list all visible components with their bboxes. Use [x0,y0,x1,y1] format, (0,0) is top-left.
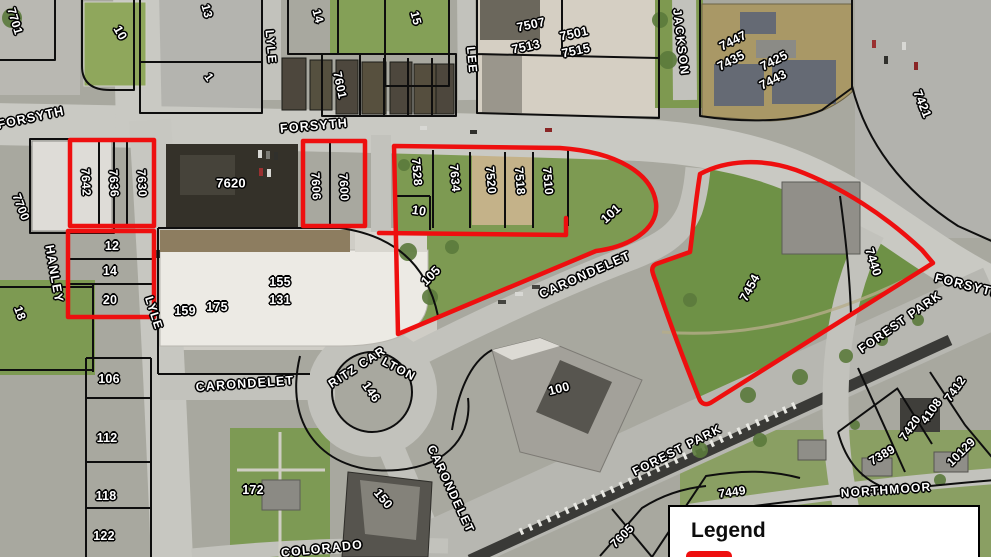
label-parcel-12: 12 [105,240,119,253]
label-parcel-7636: 7636 [107,169,120,197]
label-street-lee: LEE [465,46,479,74]
label-parcel-7501: 7501 [559,25,590,43]
label-parcel-7425: 7425 [758,49,789,73]
label-parcel-7440: 7440 [863,246,884,277]
label-street-lyle-south: LYLE [143,295,165,331]
label-parcel-7389: 7389 [867,443,897,467]
label-parcel-7421: 7421 [911,88,933,119]
legend-panel: Legend [668,505,980,557]
label-parcel-131: 131 [269,294,290,307]
label-street-carondelet-south: CARONDELET [425,443,476,534]
map-labels-layer: FORSYTHFORSYTHFORSYTHHANLEYLYLELYLELEEJA… [0,0,991,557]
legend-highlight-swatch [686,551,732,557]
label-parcel-7642: 7642 [79,168,92,196]
label-parcel-1: 1 [202,71,216,84]
label-parcel-7518: 7518 [513,167,527,195]
label-parcel-118: 118 [96,490,117,503]
label-parcel-159: 159 [174,305,195,318]
label-parcel-14-north: 14 [310,8,325,24]
label-parcel-105: 105 [419,264,443,288]
label-parcel-146: 146 [360,380,383,405]
label-parcel-122: 122 [93,530,114,543]
label-street-ritz-carlton-2: LTON [380,355,418,383]
label-parcel-7510: 7510 [541,167,555,195]
aerial-map: FORSYTHFORSYTHFORSYTHHANLEYLYLELYLELEEJA… [0,0,991,557]
label-street-hanley: HANLEY [43,244,65,304]
label-parcel-7420: 7420 [897,413,923,442]
label-street-forsyth-west: FORSYTH [0,105,66,131]
label-parcel-20: 20 [103,294,117,307]
label-parcel-7528: 7528 [410,158,424,186]
label-parcel-172: 172 [242,484,263,497]
label-parcel-106: 106 [98,373,119,386]
label-parcel-14-mid: 14 [103,265,117,278]
label-parcel-7513: 7513 [511,38,542,56]
label-parcel-101-ne: 101 [599,202,623,226]
label-parcel-7435: 7435 [715,49,746,73]
label-street-carondelet-ne: CARONDELET [537,249,632,301]
label-parcel-10-mid: 10 [411,204,427,218]
label-parcel-7412: 7412 [942,374,968,403]
label-parcel-7605: 7605 [608,522,636,550]
label-street-lyle-north: LYLE [264,29,279,64]
label-parcel-7447: 7447 [717,29,748,53]
label-street-forsyth-mid: FORSYTH [280,117,349,135]
label-parcel-155: 155 [269,276,290,289]
label-street-colorado: COLORADO [280,538,363,557]
label-parcel-10-north: 10 [111,24,129,43]
label-street-northmoor: NORTHMOOR [840,481,931,499]
label-parcel-10129: 10129 [945,436,978,469]
label-street-forest-park-sw: FOREST PARK [630,422,723,477]
label-parcel-7700: 7700 [10,192,31,222]
label-parcel-7634: 7634 [448,164,462,192]
label-parcel-18: 18 [12,304,28,321]
label-parcel-7601: 7601 [331,70,348,99]
legend-title: Legend [691,519,978,543]
label-street-ritz-carlton-1: RITZ CAR [326,344,388,390]
label-parcel-7606: 7606 [309,172,322,200]
label-parcel-7449: 7449 [718,484,747,500]
label-parcel-150: 150 [371,487,394,511]
label-parcel-15: 15 [408,10,423,26]
label-street-jackson: JACKSON [671,8,691,76]
label-parcel-100: 100 [547,380,571,397]
label-parcel-7630: 7630 [135,169,148,197]
label-parcel-13: 13 [199,3,214,19]
label-parcel-175: 175 [206,301,227,314]
label-parcel-7701: 7701 [5,6,25,36]
label-parcel-7520: 7520 [484,166,498,194]
label-parcel-7600: 7600 [337,173,350,201]
label-street-carondelet-west: CARONDELET [195,374,294,393]
label-parcel-7507: 7507 [516,16,547,34]
label-parcel-112: 112 [97,432,118,445]
label-parcel-7443: 7443 [757,68,788,92]
label-parcel-7620: 7620 [216,177,246,190]
label-parcel-7454: 7454 [738,272,762,303]
label-parcel-7515: 7515 [561,42,592,60]
label-street-forest-park-ne: FOREST PARK [856,289,943,355]
